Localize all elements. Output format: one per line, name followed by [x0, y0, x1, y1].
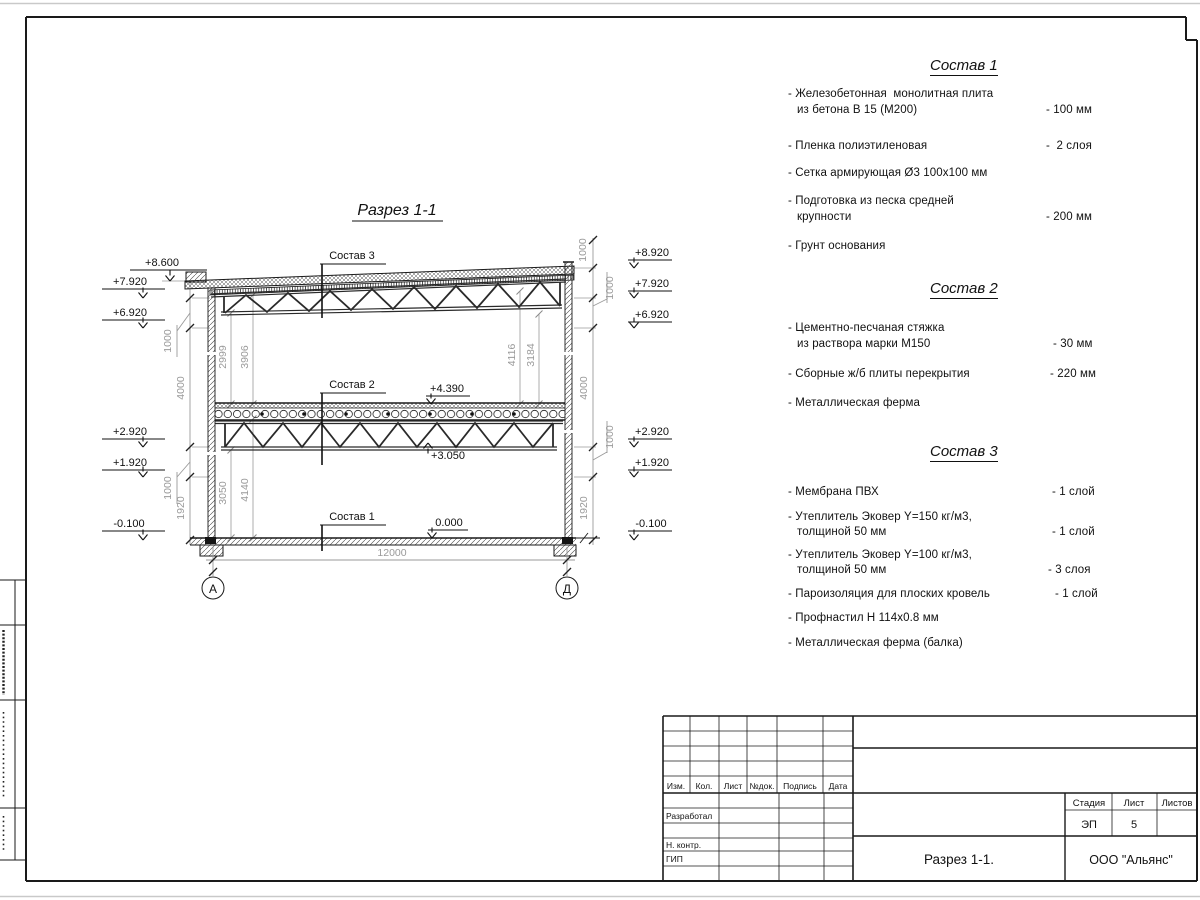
elev-l-2920: +2.920: [113, 426, 147, 438]
tb-col-kol: Кол.: [696, 781, 713, 791]
tb-company: ООО "Альянс": [1089, 853, 1173, 867]
dim-2999: 2999: [217, 345, 229, 369]
roof: [185, 266, 574, 295]
spec-value: - 200 мм: [1046, 211, 1092, 223]
elev-r-m0100: -0.100: [635, 518, 666, 530]
drawing-title: Разрез 1-1: [352, 202, 443, 221]
axis-mark-left: А: [209, 582, 217, 596]
section-title-text: Разрез 1-1: [357, 202, 436, 219]
tb-col-data: Дата: [829, 781, 848, 791]
elevations-right: +8.920 +7.920 +6.920 +2.920 +1.920 -0.10…: [628, 247, 672, 540]
tb-sheet-label: Лист: [1124, 798, 1145, 809]
spec-line: толщиной 50 мм: [797, 526, 886, 538]
dim-left-1000a: 1000: [162, 329, 174, 353]
span-dimension: 12000 А Д: [202, 547, 578, 599]
dim-right-4000: 4000: [578, 376, 590, 400]
base-embed-right: [562, 537, 573, 544]
spec-value: - 1 слой: [1055, 588, 1098, 600]
tb-col-ndok: №док.: [750, 781, 775, 791]
spec-line: - Цементно-песчаная стяжка: [788, 322, 944, 334]
spec-value: - 1 слой: [1052, 486, 1095, 498]
layer-ref-2: Состав 2: [329, 379, 375, 391]
spec-line: - Утеплитель Эковер Y=150 кг/м3,: [788, 511, 972, 523]
elev-l-m0100: -0.100: [113, 518, 144, 530]
left-margin-strip: [0, 580, 26, 860]
elev-r-7920: +7.920: [635, 278, 669, 290]
spec-line: из бетона В 15 (М200): [797, 104, 917, 116]
dim-chain-left: 1000 4000 1000 1920: [162, 281, 194, 545]
spec-line: - Железобетонная монолитная плита: [788, 88, 993, 100]
elev-3050: +3.050: [431, 450, 465, 462]
tb-stage-label: Стадия: [1073, 798, 1105, 809]
spec-line: из раствора марки М150: [797, 338, 930, 350]
spec-line: - Мембрана ПВХ: [788, 486, 879, 498]
spec-line: - Подготовка из песка средней: [788, 195, 954, 207]
dim-chain-right: 1000 1000 4000 1000 1920: [577, 236, 616, 545]
dim-right-1000c: 1000: [604, 425, 616, 449]
drawing-sheet: Разрез 1-1 1000 4000 1000 1920 1000: [0, 0, 1200, 900]
title-block-text: Изм. Кол. Лист №док. Подпись Дата Разраб…: [666, 781, 1192, 867]
spec-line: - Пленка полиэтиленовая: [788, 140, 927, 152]
right-wall: [565, 262, 572, 543]
layer-ref-1: Состав 1: [329, 511, 375, 523]
spec-value: - 2 слоя: [1046, 140, 1092, 152]
spec2-title: Состав 2: [930, 280, 998, 299]
spec1-title: Состав 1: [930, 57, 998, 76]
tb-row-razrabotal: Разработал: [666, 811, 712, 821]
spec-value: - 30 мм: [1053, 338, 1093, 350]
axis-mark-right: Д: [563, 582, 571, 596]
dim-3906: 3906: [239, 345, 251, 369]
left-wall: [208, 288, 215, 543]
elev-r-2920: +2.920: [635, 426, 669, 438]
layer-ref-3: Состав 3: [329, 250, 375, 262]
dim-3184: 3184: [525, 343, 537, 367]
base-embed-left: [205, 537, 216, 544]
tb-col-izm: Изм.: [667, 781, 685, 791]
floor-truss: [215, 421, 563, 450]
spec-line: - Утеплитель Эковер Y=100 кг/м3,: [788, 549, 972, 561]
elev-4390: +4.390: [430, 383, 464, 395]
spec-value: - 1 слой: [1052, 526, 1095, 538]
dim-4116: 4116: [506, 344, 518, 367]
spec-line: - Металлическая ферма: [788, 397, 920, 409]
spec3-title: Состав 3: [930, 443, 998, 462]
footing-left: [200, 545, 223, 556]
spec-line: крупности: [797, 211, 851, 223]
layer-references: Состав 3 Состав 2 Состав 1: [320, 250, 386, 551]
dim-left-1000b: 1000: [162, 476, 174, 500]
spec-value: - 220 мм: [1050, 368, 1096, 380]
elev-8920: +8.920: [635, 247, 669, 259]
spec-value: - 3 слоя: [1048, 564, 1091, 576]
dim-right-1000b: 1000: [604, 276, 616, 300]
elev-0000: 0.000: [435, 517, 463, 529]
spec-line: - Металлическая ферма (балка): [788, 637, 963, 649]
page-edges: [0, 4, 1200, 897]
dim-left-4000: 4000: [175, 376, 187, 400]
dim-left-1920: 1920: [175, 496, 187, 520]
dim-3050: 3050: [217, 481, 229, 505]
spec-line: - Грунт основания: [788, 240, 885, 252]
spec-line: - Сетка армирующая Ø3 100х100 мм: [788, 167, 987, 179]
elev-l-1920: +1.920: [113, 457, 147, 469]
dim-4140: 4140: [239, 478, 251, 502]
section-drawing: Разрез 1-1 1000 4000 1000 1920 1000: [0, 0, 1200, 900]
tb-col-list: Лист: [724, 781, 743, 791]
tb-doc-title: Разрез 1-1.: [924, 852, 994, 867]
tb-stage-value: ЭП: [1081, 819, 1097, 831]
elev-l-7920: +7.920: [113, 276, 147, 288]
tb-row-gip: ГИП: [666, 854, 683, 864]
spec-value: - 100 мм: [1046, 104, 1092, 116]
tb-col-podpis: Подпись: [783, 781, 817, 791]
dim-right-1920: 1920: [578, 496, 590, 520]
mid-floor-slab: [215, 403, 565, 420]
spec-line: - Пароизоляция для плоских кровель: [788, 588, 990, 600]
elevations-left: +8.600 +7.920 +6.920 +2.920 +1.920 -0.10…: [102, 257, 207, 540]
dim-right-1000a: 1000: [577, 238, 589, 262]
elev-8600: +8.600: [145, 257, 179, 269]
footing-right: [554, 545, 576, 556]
tb-sheets-label: Листов: [1162, 798, 1193, 809]
spec-line: толщиной 50 мм: [797, 564, 886, 576]
elev-r-1920: +1.920: [635, 457, 669, 469]
tb-sheet-value: 5: [1131, 819, 1137, 831]
elev-l-6920: +6.920: [113, 307, 147, 319]
spec-line: - Сборные ж/б плиты перекрытия: [788, 368, 970, 380]
elev-r-6920: +6.920: [635, 309, 669, 321]
span-dim-text: 12000: [377, 547, 406, 559]
tb-row-nkontr: Н. контр.: [666, 840, 701, 850]
spec-line: - Профнастил Н 114х0.8 мм: [788, 612, 939, 624]
roof-edge-block: [186, 272, 206, 282]
